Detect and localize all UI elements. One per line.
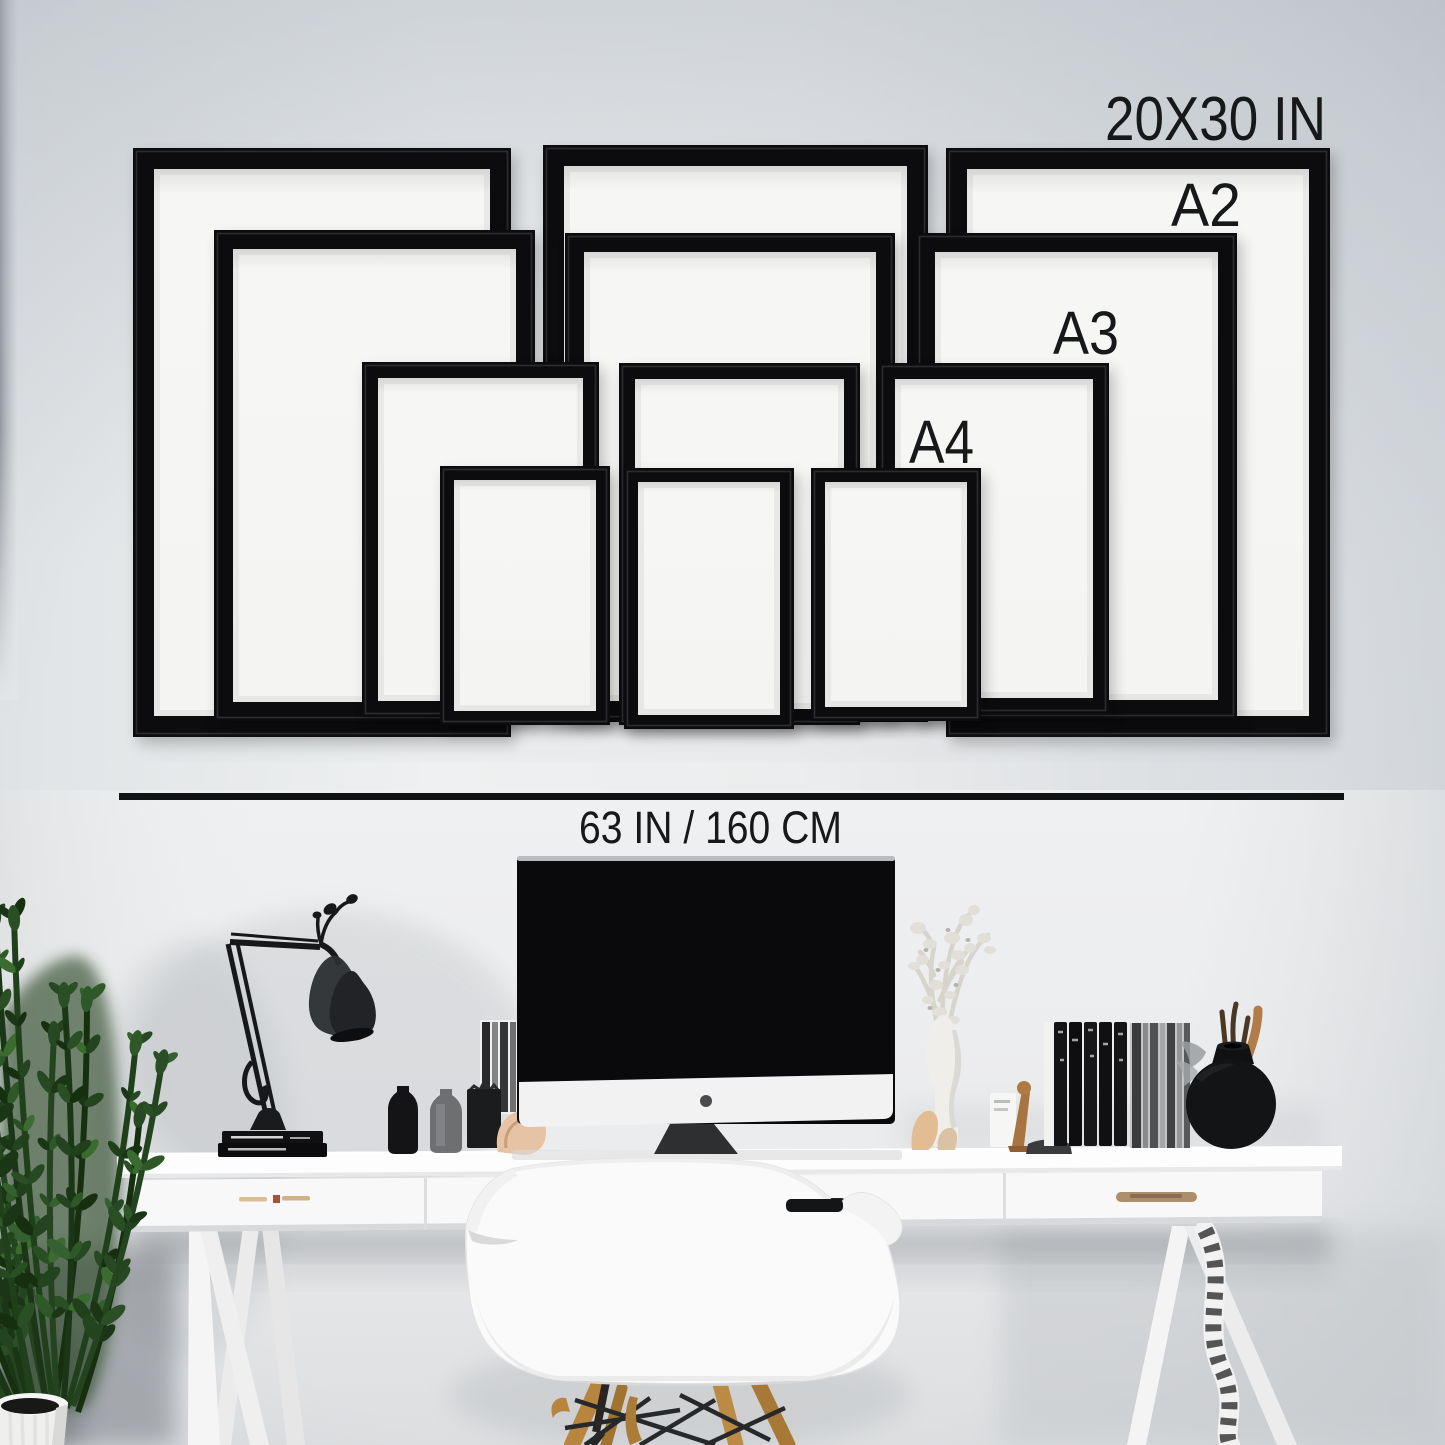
svg-text:A3: A3 [1053, 299, 1119, 367]
svg-text:A2: A2 [1171, 171, 1241, 239]
svg-text:20X30 IN: 20X30 IN [1105, 85, 1326, 154]
svg-text:A4: A4 [909, 408, 974, 476]
svg-text:63 IN / 160 CM: 63 IN / 160 CM [579, 802, 842, 853]
